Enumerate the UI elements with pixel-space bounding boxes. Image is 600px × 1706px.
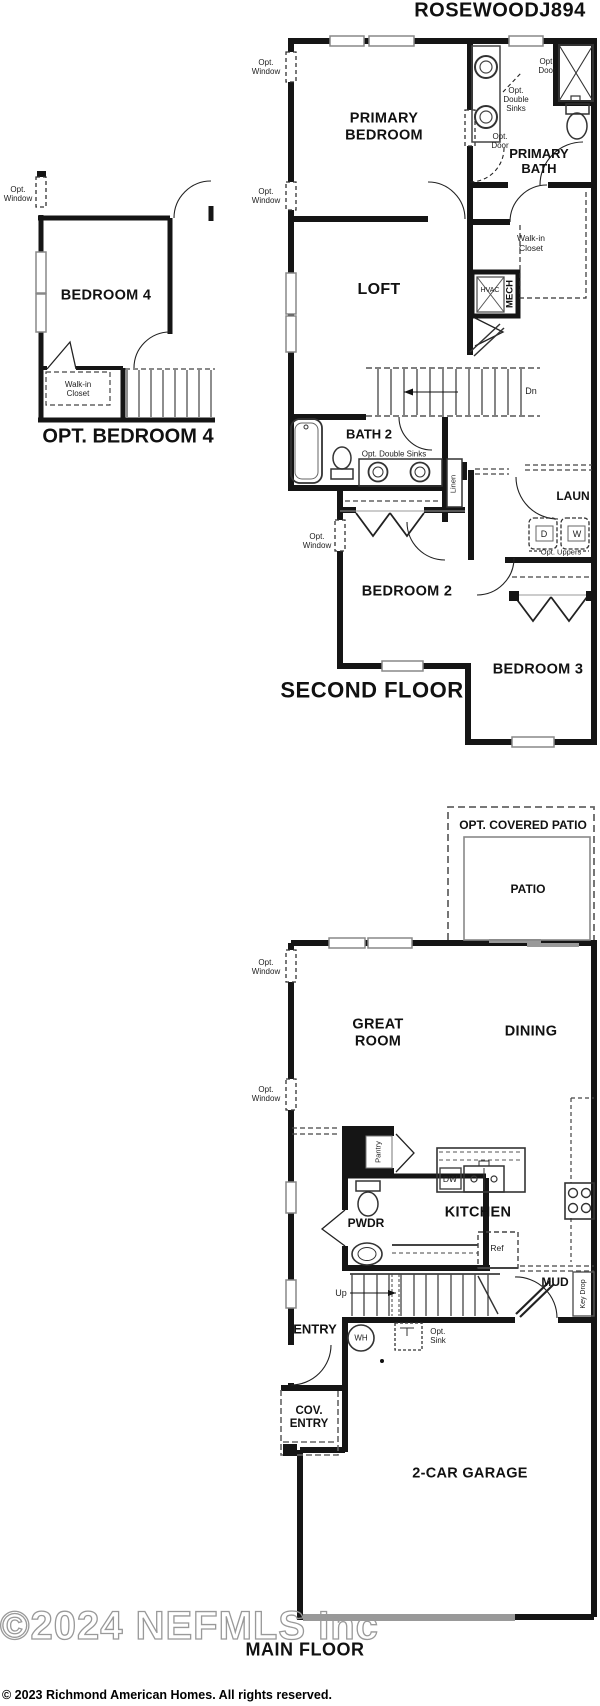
annotation-opt-window: Opt.Window: [252, 187, 280, 205]
room-label-pantry: Pantry: [375, 1141, 384, 1163]
room-label-mud: MUD: [541, 1276, 568, 1290]
second-floor-title: SECOND FLOOR: [280, 677, 463, 702]
floor-drain-dot: [380, 1359, 384, 1363]
annotation-key-drop: Key Drop: [580, 1279, 588, 1308]
room-label-great-room: GREATROOM: [352, 1016, 403, 1049]
annotation-dishwasher: DW: [443, 1175, 457, 1185]
annotation-hvac: HVAC: [481, 287, 500, 295]
stairs-second-floor: [366, 324, 540, 416]
annotation-dryer: D: [541, 529, 548, 539]
room-label-patio: PATIO: [511, 883, 546, 897]
room-label-walkin-closet-b4: Walk-inCloset: [65, 380, 91, 398]
powder-door: [322, 1210, 345, 1246]
bathtub-icon: [291, 419, 322, 483]
copyright-line: © 2023 Richmond American Homes. All righ…: [2, 1688, 332, 1702]
room-label-bath2: BATH 2: [346, 428, 392, 443]
room-label-walkin-closet: Walk-inCloset: [517, 234, 545, 254]
annotation-mech: MECH: [506, 280, 517, 308]
room-label-primary-bedroom: PRIMARYBEDROOM: [345, 110, 423, 143]
room-label-entry: ENTRY: [293, 1323, 337, 1338]
floorplan-linework: [0, 0, 600, 1706]
annotation-up: Up: [335, 1288, 347, 1298]
vanity-bath2: [359, 459, 442, 486]
room-label-bedroom3: BEDROOM 3: [493, 662, 584, 679]
room-label-cov-entry: COV.ENTRY: [290, 1405, 329, 1431]
opt-bedroom4-opt-window: [36, 177, 46, 207]
room-label-bedroom4: BEDROOM 4: [61, 288, 152, 305]
stove-icon: [565, 1183, 594, 1219]
annotation-ref: Ref: [490, 1244, 503, 1254]
annotation-washer: W: [573, 529, 582, 539]
watermark: ©2024 NEFMLS Inc: [0, 1604, 600, 1649]
annotation-down: Dn: [525, 386, 537, 396]
room-label-garage: 2-CAR GARAGE: [412, 1466, 528, 1483]
opt-bedroom4-title: OPT. BEDROOM 4: [42, 426, 213, 449]
toilet-primary-bath: [566, 104, 589, 139]
stairs-opt-bedroom4: [125, 369, 215, 417]
room-label-primary-bath: PRIMARYBATH: [509, 147, 568, 177]
annotation-opt-window: Opt.Window: [252, 958, 280, 976]
annotation-opt-window: Opt.Window: [303, 532, 331, 550]
annotation-opt-door: Opt.Door: [491, 132, 508, 150]
opt-bedroom4-doors: [47, 181, 211, 369]
vanity-double-sinks: [472, 46, 500, 142]
toilet-bath2: [331, 447, 353, 479]
room-label-kitchen: KITCHEN: [445, 1205, 512, 1222]
entry-door: [291, 1345, 331, 1385]
room-label-powder: PWDR: [348, 1217, 385, 1231]
stairs-main-floor: [350, 1274, 500, 1316]
second-floor-walls: [288, 38, 594, 742]
pantry-door: [396, 1134, 414, 1172]
annotation-opt-window: Opt.Window: [4, 185, 32, 203]
bifold-doors: [340, 511, 592, 621]
annotation-opt-uppers: Opt. Uppers: [541, 549, 581, 558]
kitchen-island: [437, 1148, 525, 1192]
plan-title: ROSEWOODJ894: [414, 0, 586, 23]
sink-powder: [352, 1243, 382, 1265]
room-label-dining: DINING: [505, 1024, 558, 1041]
room-label-loft: LOFT: [358, 281, 401, 299]
annotation-linen: Linen: [450, 475, 459, 493]
annotation-water-heater: WH: [354, 1333, 367, 1342]
annotation-opt-sink: Opt.Sink: [430, 1327, 446, 1345]
label-opt-covered-patio: OPT. COVERED PATIO: [459, 819, 587, 833]
floorplan-page: ROSEWOODJ894 Opt.Window Opt.Window PRIMA…: [0, 0, 600, 1706]
annotation-opt-window: Opt.Window: [252, 1085, 280, 1103]
toilet-powder: [356, 1181, 380, 1216]
annotation-opt-double-sinks: Opt. Double Sinks: [362, 449, 426, 458]
room-label-laundry: LAUN: [556, 490, 589, 504]
room-label-bedroom2: BEDROOM 2: [362, 584, 453, 601]
shower-icon: [559, 45, 593, 101]
annotation-opt-window: Opt.Window: [252, 58, 280, 76]
opt-sink-icon: [395, 1323, 422, 1350]
inset-window-tick: [37, 171, 46, 177]
cov-entry-post: [283, 1444, 297, 1456]
annotation-opt-double-sinks: Opt. Double Sinks: [503, 86, 528, 114]
annotation-opt-door: Opt.Door: [538, 57, 555, 75]
dashed-opening-great-room: [292, 1128, 340, 1134]
opt-bedroom4-windows: [36, 252, 46, 332]
